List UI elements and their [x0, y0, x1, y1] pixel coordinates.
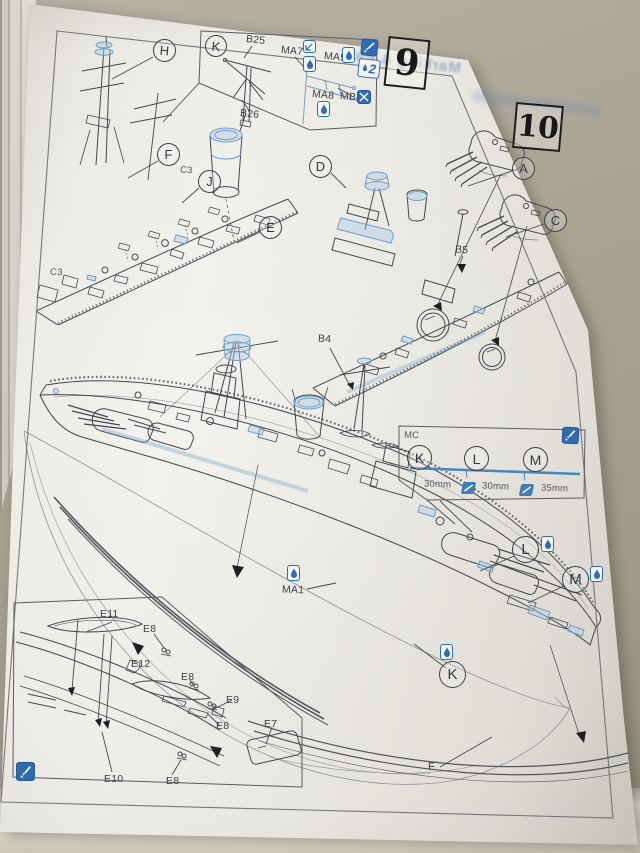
callout-d: D — [309, 155, 332, 178]
step-10-number: 10 — [512, 102, 564, 152]
part-label-e12: E12 — [131, 659, 150, 670]
part-label-b4: B4 — [318, 334, 332, 345]
part-label-c3-top: C3 — [180, 166, 193, 176]
quantity-x2-value: 2 — [368, 62, 377, 76]
part-label-e7: E7 — [264, 719, 277, 730]
part-label-ma8: MA8 — [312, 89, 335, 102]
glue-icon-ma7 — [303, 56, 316, 72]
cable-length-l: 30mm — [482, 482, 510, 492]
cable-code-mc: MC — [404, 431, 419, 441]
cable-callout-l: L — [464, 446, 489, 471]
part-label-e8-b: E8 — [181, 672, 194, 683]
cable-callout-k: K — [407, 445, 432, 470]
part-label-e11: E11 — [100, 609, 119, 620]
main-callout-m: M — [562, 566, 589, 593]
callout-c: C — [544, 209, 567, 232]
part-label-b26: B26 — [240, 108, 260, 120]
part-label-ma1: MA1 — [282, 585, 305, 596]
glue-icon-main-m — [590, 566, 603, 582]
glue-icon-main-l — [541, 536, 554, 552]
cut-cable-icon-1 — [461, 482, 477, 494]
callout-a: A — [512, 157, 535, 180]
part-label-b25: B25 — [246, 34, 266, 46]
cable-length-k: 30mm — [424, 480, 452, 490]
part-label-c3-left: C3 — [50, 268, 63, 278]
glue-icon-ma9 — [342, 47, 355, 63]
bend-icon — [303, 40, 316, 53]
glue-icon-ma8 — [317, 101, 330, 117]
callout-f: F — [157, 143, 180, 166]
part-label-b5: B5 — [455, 245, 469, 256]
main-callout-k: K — [439, 661, 466, 688]
part-label-e10: E10 — [104, 774, 123, 785]
part-label-e8-a: E8 — [143, 624, 156, 635]
part-label-ma7: MA7 — [281, 45, 304, 58]
part-label-f-hull: F — [428, 762, 435, 773]
cut-cable-icon-2 — [519, 484, 535, 496]
glue-icon-main-k — [440, 644, 453, 660]
callout-e: E — [259, 216, 282, 239]
step-9-number: 9 — [384, 36, 431, 90]
paintbrush-icon-boat-inset — [16, 762, 35, 781]
glue-icon-ma1 — [287, 565, 300, 581]
paintbrush-icon — [360, 38, 379, 57]
part-label-e9: E9 — [226, 695, 239, 706]
cut-icon-mb6 — [357, 90, 371, 104]
callout-j: J — [198, 170, 221, 193]
part-label-e8-d: E8 — [166, 776, 179, 787]
part-label-e8-c: E8 — [216, 721, 229, 732]
quantity-x2-icon: 2 — [357, 58, 381, 79]
step-9-label: 9 — [392, 41, 421, 85]
cable-callout-m: M — [523, 447, 548, 472]
photo-of-instruction-page: Marking & Pa — [0, 0, 640, 853]
paintbrush-icon-cable-box — [562, 427, 580, 445]
main-callout-l: L — [512, 536, 539, 563]
step-10-label: 10 — [516, 108, 561, 147]
cable-length-m: 35mm — [541, 484, 569, 494]
